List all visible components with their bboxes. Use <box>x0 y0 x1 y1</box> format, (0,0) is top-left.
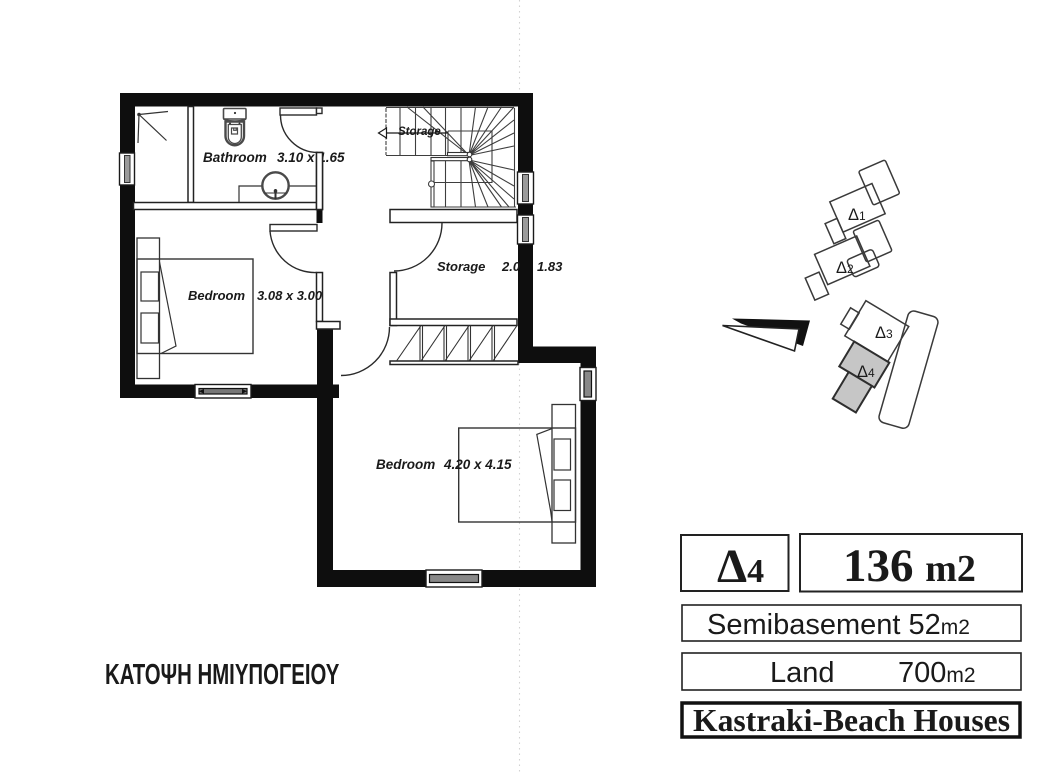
svg-text:Δ4: Δ4 <box>857 363 875 381</box>
svg-text:3.08 x 3.00: 3.08 x 3.00 <box>257 288 323 303</box>
svg-text:Δ2: Δ2 <box>836 259 854 277</box>
svg-text:Δ1: Δ1 <box>848 206 866 224</box>
svg-text:Semibasement 52m2: Semibasement 52m2 <box>707 609 970 641</box>
svg-text:2.0: 2.0 <box>501 259 521 274</box>
svg-text:136 m2: 136 m2 <box>843 540 976 592</box>
svg-text:Bedroom: Bedroom <box>188 288 246 303</box>
svg-text:Bathroom: Bathroom <box>203 150 267 165</box>
svg-text:1.83: 1.83 <box>537 259 563 274</box>
svg-text:Bedroom: Bedroom <box>376 457 435 472</box>
svg-text:Storage: Storage <box>398 126 441 138</box>
svg-text:4.20 x 4.15: 4.20 x 4.15 <box>443 457 512 472</box>
svg-text:Kastraki-Beach Houses: Kastraki-Beach Houses <box>693 702 1010 738</box>
svg-text:Storage: Storage <box>437 259 485 274</box>
svg-text:Δ3: Δ3 <box>875 324 893 342</box>
svg-text:3.10 x 1.65: 3.10 x 1.65 <box>277 150 345 165</box>
svg-text:ΚΑΤΟΨΗ ΗΜΙΥΠΟΓΕΙΟΥ: ΚΑΤΟΨΗ ΗΜΙΥΠΟΓΕΙΟΥ <box>105 660 340 691</box>
svg-text:Land: Land <box>770 657 835 689</box>
